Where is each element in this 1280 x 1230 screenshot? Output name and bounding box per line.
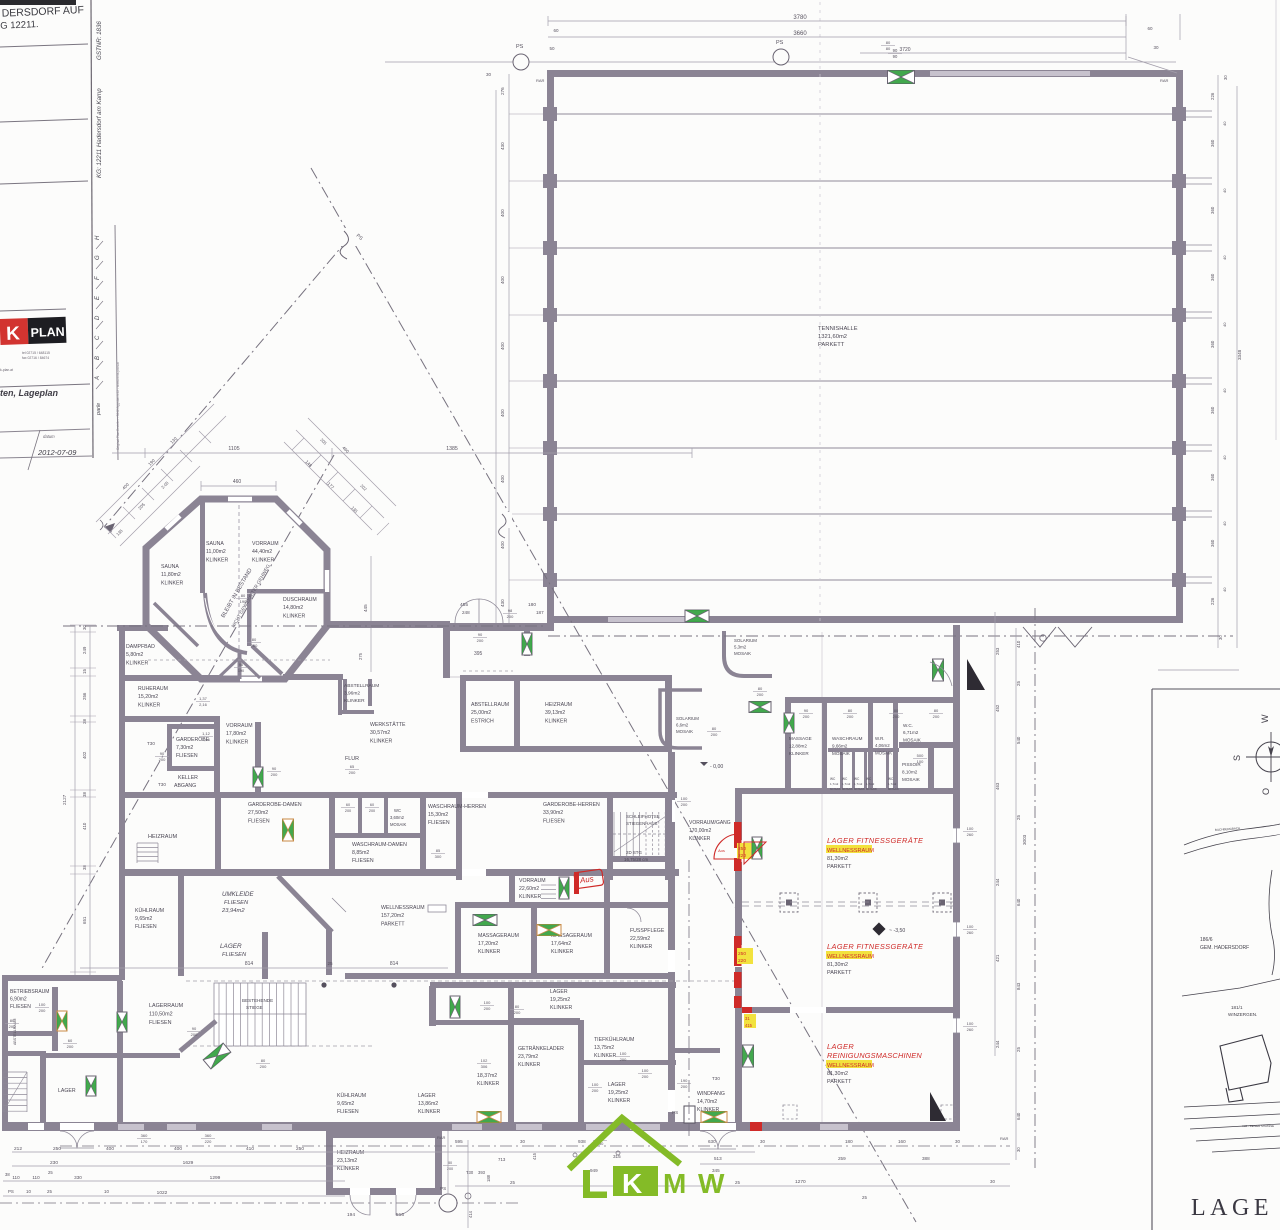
svg-text:1,7m2: 1,7m2 (888, 782, 897, 786)
svg-text:PS: PS (672, 1110, 678, 1115)
svg-text:RAR: RAR (1160, 78, 1169, 83)
svg-text:KLINKER: KLINKER (594, 1053, 616, 1059)
svg-text:ABSTELLRAUM: ABSTELLRAUM (344, 683, 379, 689)
svg-text:PARKETT: PARKETT (381, 921, 405, 927)
svg-text:410: 410 (1016, 640, 1021, 648)
svg-text:80: 80 (758, 686, 763, 691)
svg-text:FLIESEN: FLIESEN (135, 924, 157, 930)
svg-text:200: 200 (39, 1008, 46, 1013)
svg-text:25: 25 (327, 961, 333, 966)
svg-text:360: 360 (141, 1133, 148, 1138)
svg-text:100: 100 (642, 1068, 649, 1073)
svg-text:STIEGE: STIEGE (246, 1005, 263, 1010)
svg-text:30: 30 (1016, 1147, 1021, 1152)
svg-text:430: 430 (500, 599, 505, 607)
svg-text:KLINKER: KLINKER (418, 1109, 440, 1115)
svg-text:80: 80 (241, 593, 246, 598)
svg-text:30: 30 (990, 1179, 995, 1184)
svg-text:226: 226 (1210, 92, 1215, 100)
svg-text:200: 200 (345, 809, 351, 813)
svg-text:260: 260 (967, 1027, 974, 1032)
svg-text:244: 244 (995, 878, 1000, 886)
svg-text:460: 460 (233, 479, 242, 485)
svg-text:T30: T30 (712, 1076, 720, 1081)
svg-text:25: 25 (1016, 1047, 1021, 1052)
svg-text:GARDEROBE-HERREN: GARDEROBE-HERREN (543, 802, 600, 808)
svg-text:200: 200 (260, 1064, 267, 1069)
svg-text:FLIESEN: FLIESEN (428, 820, 450, 826)
svg-text:9,66m2: 9,66m2 (832, 743, 848, 748)
svg-text:60: 60 (68, 1038, 73, 1043)
svg-text:30: 30 (520, 1139, 525, 1144)
svg-text:110: 110 (32, 1175, 40, 1180)
svg-text:360: 360 (1210, 539, 1215, 547)
svg-text:VORRAUM/GANG: VORRAUM/GANG (689, 820, 731, 826)
svg-text:200: 200 (369, 809, 375, 813)
svg-text:360: 360 (1210, 340, 1215, 348)
svg-text:410: 410 (82, 822, 87, 830)
svg-text:400: 400 (500, 541, 505, 549)
svg-text:200: 200 (349, 770, 356, 775)
svg-text:306: 306 (481, 1064, 488, 1069)
svg-text:KLINKER: KLINKER (689, 836, 711, 842)
svg-text:WC: WC (888, 777, 894, 781)
svg-text:2127: 2127 (62, 794, 67, 805)
svg-text:400: 400 (500, 409, 505, 417)
svg-text:80: 80 (252, 637, 257, 642)
svg-text:200: 200 (847, 714, 854, 719)
svg-text:WINZERGEN.: WINZERGEN. (1228, 1012, 1257, 1017)
svg-text:KELLER: KELLER (178, 775, 198, 781)
svg-text:160: 160 (898, 1139, 906, 1144)
svg-text:MOSAIK: MOSAIK (390, 822, 406, 827)
svg-text:250: 250 (296, 1146, 304, 1152)
svg-text:200: 200 (711, 732, 718, 737)
svg-text:100: 100 (39, 1002, 46, 1007)
svg-text:275: 275 (358, 652, 363, 660)
svg-text:19,25m2: 19,25m2 (550, 997, 570, 1003)
svg-text:RUHERAUM: RUHERAUM (138, 686, 168, 692)
svg-text:640: 640 (1016, 1112, 1021, 1120)
svg-text:651: 651 (82, 916, 87, 924)
svg-text:40: 40 (1222, 188, 1227, 193)
svg-text:Aus: Aus (717, 848, 725, 853)
svg-text:100: 100 (681, 796, 688, 801)
svg-text:KLINKER: KLINKER (138, 702, 160, 708)
svg-text:1299: 1299 (210, 1175, 221, 1181)
svg-text:38: 38 (82, 865, 87, 870)
svg-text:KLINKER: KLINKER (161, 580, 183, 586)
svg-text:27,50m2: 27,50m2 (248, 810, 268, 816)
svg-text:90: 90 (893, 48, 898, 53)
svg-text:LAGERRAUM: LAGERRAUM (149, 1003, 184, 1009)
svg-text:F: F (95, 276, 101, 280)
svg-text:25: 25 (1016, 681, 1021, 686)
svg-text:1022: 1022 (157, 1190, 168, 1196)
svg-text:96: 96 (239, 663, 243, 667)
svg-text:7,30m2: 7,30m2 (176, 745, 193, 751)
svg-text:40: 40 (1222, 521, 1227, 526)
svg-text:3003: 3003 (1022, 834, 1027, 845)
svg-text:30: 30 (82, 625, 87, 630)
svg-text:230: 230 (50, 1160, 58, 1166)
svg-text:KÜHLRAUM: KÜHLRAUM (337, 1092, 366, 1099)
svg-text:100: 100 (967, 1021, 974, 1026)
svg-text:81,30m2: 81,30m2 (827, 962, 848, 968)
svg-text:100: 100 (484, 1000, 491, 1005)
svg-text:400: 400 (500, 276, 505, 284)
svg-text:31: 31 (745, 1016, 750, 1021)
svg-text:14,70m2: 14,70m2 (697, 1099, 717, 1105)
svg-text:k-plan.at: k-plan.at (0, 368, 13, 372)
svg-text:KLINKER: KLINKER (206, 557, 228, 563)
svg-text:81,30m2: 81,30m2 (827, 856, 848, 862)
svg-text:Original Plan Ersteller - 3642: Original Plan Ersteller - 3642 Aggsbach … (116, 362, 120, 450)
svg-text:5,3m2: 5,3m2 (734, 644, 747, 649)
svg-text:PLAN: PLAN (30, 325, 64, 340)
svg-text:- 0,00: - 0,00 (710, 764, 723, 770)
svg-text:1629: 1629 (183, 1160, 194, 1166)
svg-text:248: 248 (462, 610, 470, 615)
svg-text:421: 421 (995, 954, 1000, 962)
svg-text:MOSAIK: MOSAIK (888, 787, 899, 791)
svg-text:9,65m2: 9,65m2 (337, 1101, 354, 1107)
svg-text:3720: 3720 (899, 47, 910, 53)
svg-text:O: O (1261, 788, 1271, 795)
svg-text:40: 40 (1222, 121, 1227, 126)
svg-text:WC: WC (842, 777, 848, 781)
svg-text:6,90m2: 6,90m2 (10, 997, 27, 1003)
svg-text:PARKETT: PARKETT (827, 1079, 852, 1085)
svg-text:30: 30 (955, 1139, 960, 1144)
svg-text:TENNISHALLE: TENNISHALLE (818, 326, 858, 332)
svg-text:BETRIEBSRAUM: BETRIEBSRAUM (10, 989, 49, 995)
svg-text:WELLNESSRAUM: WELLNESSRAUM (381, 905, 425, 911)
svg-text:220: 220 (738, 958, 746, 964)
svg-text:186/6: 186/6 (1200, 937, 1213, 943)
svg-text:parle: parle (96, 403, 102, 416)
svg-text:T30: T30 (158, 782, 166, 787)
svg-text:25: 25 (47, 1189, 52, 1194)
svg-text:80: 80 (886, 46, 891, 51)
svg-text:10: 10 (104, 1189, 109, 1194)
svg-text:16,75/28 cm: 16,75/28 cm (624, 857, 649, 862)
svg-text:513: 513 (714, 1156, 722, 1161)
svg-text:LAGER: LAGER (550, 989, 568, 995)
svg-text:60: 60 (553, 28, 559, 33)
svg-text:KÜHLRAUM: KÜHLRAUM (135, 907, 164, 914)
svg-text:200: 200 (271, 772, 278, 777)
svg-text:SAUNA: SAUNA (206, 541, 224, 547)
svg-text:KLINKER: KLINKER (551, 949, 573, 955)
svg-text:415: 415 (532, 1152, 537, 1160)
svg-text:WERKSTÄTTE: WERKSTÄTTE (370, 721, 406, 728)
svg-text:400: 400 (500, 342, 505, 350)
svg-text:445: 445 (363, 604, 368, 612)
svg-text:FLIESEN: FLIESEN (224, 900, 249, 906)
svg-text:FLIESEN: FLIESEN (222, 952, 247, 958)
svg-text:395: 395 (474, 651, 483, 657)
svg-text:200: 200 (893, 714, 900, 719)
svg-text:843: 843 (1016, 982, 1021, 990)
svg-text:KLINKER: KLINKER (344, 698, 365, 704)
svg-text:PS: PS (440, 1186, 446, 1191)
svg-text:400: 400 (500, 209, 505, 217)
svg-text:1,7m2: 1,7m2 (830, 782, 839, 786)
svg-text:253: 253 (995, 647, 1000, 655)
svg-text:6,71m2: 6,71m2 (903, 730, 919, 735)
svg-text:60: 60 (1147, 26, 1153, 31)
svg-text:30: 30 (1153, 45, 1159, 50)
svg-text:102: 102 (481, 1058, 488, 1063)
svg-text:38: 38 (82, 719, 87, 724)
svg-text:LAGER: LAGER (58, 1088, 76, 1094)
svg-text:MOSAIK: MOSAIK (875, 750, 892, 755)
svg-text:200: 200 (67, 1044, 74, 1049)
svg-text:65: 65 (350, 764, 355, 769)
svg-text:B: B (95, 356, 101, 360)
svg-text:414: 414 (468, 1210, 473, 1218)
svg-text:200: 200 (592, 1088, 599, 1093)
svg-text:80: 80 (848, 708, 853, 713)
svg-text:360: 360 (205, 1133, 212, 1138)
svg-text:170: 170 (141, 1139, 148, 1144)
svg-text:KLINKER: KLINKER (519, 894, 541, 900)
svg-text:KLINKER: KLINKER (550, 1005, 572, 1011)
svg-text:19,25m2: 19,25m2 (608, 1090, 628, 1096)
svg-text:2,16: 2,16 (202, 737, 211, 742)
svg-text:80: 80 (886, 40, 891, 45)
svg-text:8,85m2: 8,85m2 (352, 850, 369, 856)
svg-text:KLINKER: KLINKER (608, 1098, 630, 1104)
svg-text:4,06m2: 4,06m2 (875, 743, 890, 748)
svg-text:MOSAIK: MOSAIK (676, 729, 693, 734)
svg-text:200: 200 (642, 1074, 649, 1079)
svg-text:11,80m2: 11,80m2 (161, 572, 181, 578)
svg-text:FLIESEN: FLIESEN (10, 1004, 31, 1010)
svg-text:PS: PS (516, 44, 524, 50)
svg-text:GSTNR: 1836: GSTNR: 1836 (96, 21, 103, 60)
svg-text:194: 194 (347, 1212, 355, 1218)
svg-text:WASCHRAUM-DAMEN: WASCHRAUM-DAMEN (352, 842, 407, 848)
svg-text:ESTRICH: ESTRICH (471, 718, 494, 724)
svg-text:ALB - REISER STRASSE: ALB - REISER STRASSE (1242, 1124, 1274, 1128)
svg-text:FLIESEN: FLIESEN (543, 818, 565, 824)
svg-text:260: 260 (967, 832, 974, 837)
svg-text:T30: T30 (466, 1170, 474, 1175)
svg-text:90: 90 (478, 632, 483, 637)
svg-text:2,16: 2,16 (199, 702, 208, 707)
svg-text:80: 80 (10, 1018, 15, 1023)
svg-text:100: 100 (967, 826, 974, 831)
svg-text:17,20m2: 17,20m2 (478, 941, 498, 947)
svg-text:360: 360 (1210, 139, 1215, 147)
svg-text:80: 80 (934, 708, 939, 713)
svg-text:10: 10 (26, 1189, 31, 1194)
svg-text:G 12211.: G 12211. (0, 19, 39, 32)
svg-text:LAGER FITNESSGERÄTE: LAGER FITNESSGERÄTE (827, 942, 923, 951)
svg-text:360: 360 (1210, 473, 1215, 481)
svg-text:MOSAIK: MOSAIK (842, 787, 853, 791)
svg-text:190: 190 (238, 669, 244, 673)
svg-text:410: 410 (246, 1146, 254, 1152)
svg-text:100: 100 (967, 924, 974, 929)
svg-text:40: 40 (1222, 255, 1227, 260)
svg-text:100: 100 (917, 759, 924, 764)
svg-text:C: C (95, 335, 101, 340)
svg-text:KLINKER: KLINKER (252, 557, 274, 563)
svg-text:K: K (6, 323, 21, 344)
svg-text:157,20m2: 157,20m2 (381, 913, 404, 919)
svg-text:LAGER: LAGER (220, 943, 242, 950)
svg-text:200: 200 (803, 714, 810, 719)
svg-text:GETRÄNKELADER: GETRÄNKELADER (518, 1045, 564, 1052)
svg-text:WASCHRAUM-HERREN: WASCHRAUM-HERREN (428, 804, 486, 810)
svg-text:W.C.: W.C. (903, 723, 913, 728)
svg-text:39,13m2: 39,13m2 (545, 710, 565, 716)
svg-text:HEIZRAUM: HEIZRAUM (337, 1150, 364, 1156)
svg-text:220: 220 (205, 1139, 212, 1144)
svg-text:15,20m2: 15,20m2 (138, 694, 158, 700)
svg-text:1270: 1270 (795, 1179, 806, 1185)
svg-text:WASCHRAUM: WASCHRAUM (832, 736, 863, 741)
svg-text:H: H (95, 235, 101, 240)
svg-text:MASSAGE: MASSAGE (789, 736, 812, 741)
svg-text:430: 430 (500, 142, 505, 150)
svg-text:KLINKER: KLINKER (630, 944, 652, 950)
svg-text:3348: 3348 (1237, 349, 1242, 360)
svg-text:PS: PS (776, 40, 784, 46)
svg-text:30,57m2: 30,57m2 (370, 730, 390, 736)
svg-text:FLUR: FLUR (345, 756, 359, 762)
svg-text:244: 244 (995, 1040, 1000, 1048)
svg-text:FUSSPFLEGE: FUSSPFLEGE (630, 928, 665, 934)
svg-text:30: 30 (760, 1139, 765, 1144)
svg-text:250: 250 (738, 951, 746, 957)
svg-text:80: 80 (515, 1004, 520, 1009)
svg-text:ten, Lageplan: ten, Lageplan (0, 388, 59, 398)
svg-text:ABGANG: ABGANG (174, 783, 196, 789)
svg-text:80: 80 (712, 726, 717, 731)
svg-text:2D STG: 2D STG (626, 850, 642, 855)
svg-text:814: 814 (245, 961, 254, 967)
svg-text:212: 212 (14, 1146, 22, 1152)
svg-text:256: 256 (82, 692, 87, 700)
svg-text:90: 90 (893, 54, 898, 59)
svg-text:STIEGENHAUS: STIEGENHAUS (626, 821, 658, 826)
svg-text:452: 452 (995, 704, 1000, 712)
svg-text:DAMPFBAD: DAMPFBAD (126, 644, 155, 650)
svg-text:fax 02716 / 84674: fax 02716 / 84674 (22, 356, 49, 360)
svg-text:388: 388 (922, 1156, 930, 1161)
svg-text:200: 200 (514, 1010, 521, 1015)
svg-text:KLINKER: KLINKER (283, 613, 305, 619)
svg-text:PS: PS (8, 1189, 14, 1194)
svg-text:A: A (95, 376, 101, 381)
svg-text:200: 200 (620, 1057, 627, 1062)
svg-text:1,7m2: 1,7m2 (842, 782, 851, 786)
svg-text:15: 15 (82, 669, 87, 674)
svg-text:400: 400 (174, 1146, 182, 1152)
svg-text:200: 200 (757, 692, 764, 697)
svg-text:KG: 12211 Hadersdorf am Kamp: KG: 12211 Hadersdorf am Kamp (96, 88, 103, 178)
svg-text:SAUNA: SAUNA (161, 564, 179, 570)
svg-text:UMKLEIDE: UMKLEIDE (222, 891, 255, 898)
svg-text:400: 400 (500, 475, 505, 483)
svg-text:WC: WC (866, 777, 872, 781)
svg-text:25,00m2: 25,00m2 (471, 710, 491, 716)
svg-text:tel 02715 / 648115: tel 02715 / 648115 (22, 351, 50, 355)
svg-text:85: 85 (436, 848, 441, 853)
svg-text:W: W (698, 1168, 725, 1199)
svg-text:595: 595 (455, 1139, 463, 1144)
svg-text:40: 40 (1222, 322, 1227, 327)
svg-text:15,30m2: 15,30m2 (428, 812, 448, 818)
svg-text:40: 40 (1222, 587, 1227, 592)
svg-text:W.R.: W.R. (875, 736, 885, 741)
svg-text:30: 30 (1218, 635, 1223, 640)
svg-text:814: 814 (390, 961, 399, 967)
svg-text:200: 200 (681, 802, 688, 807)
svg-text:RAR: RAR (536, 78, 545, 83)
svg-text:KLINKER: KLINKER (337, 1166, 359, 1172)
svg-text:3780: 3780 (793, 15, 807, 21)
svg-text:DUSCHRAUM: DUSCHRAUM (283, 597, 317, 603)
svg-text:MOSAIK: MOSAIK (854, 787, 865, 791)
svg-text:VORRAUM: VORRAUM (226, 723, 253, 729)
svg-text:187: 187 (536, 610, 544, 615)
svg-text:MASSAGERAUM: MASSAGERAUM (478, 933, 519, 939)
svg-text:HEIZRAUM: HEIZRAUM (545, 702, 572, 708)
svg-text:44,40m2: 44,40m2 (252, 549, 272, 555)
svg-text:949: 949 (590, 1168, 598, 1173)
svg-text:25: 25 (510, 1180, 515, 1185)
svg-text:226: 226 (1210, 597, 1215, 605)
svg-text:WELLNESSRAUM: WELLNESSRAUM (827, 848, 874, 854)
svg-text:G: G (95, 255, 101, 260)
svg-text:KLINKER: KLINKER (478, 949, 500, 955)
svg-text:23,94m2: 23,94m2 (221, 908, 245, 914)
svg-text:FLIESEN: FLIESEN (176, 753, 198, 759)
svg-text:415: 415 (745, 1023, 753, 1028)
svg-text:KLINKER: KLINKER (370, 738, 392, 744)
svg-text:276: 276 (500, 87, 505, 95)
svg-text:200: 200 (477, 638, 484, 643)
svg-text:300: 300 (435, 854, 442, 859)
svg-text:TIEFKÜHLRAUM: TIEFKÜHLRAUM (594, 1036, 634, 1043)
svg-text:PARKETT: PARKETT (827, 970, 852, 976)
svg-text:RAR: RAR (1000, 1136, 1009, 1141)
svg-text:249: 249 (82, 646, 87, 654)
svg-text:22,60m2: 22,60m2 (519, 886, 539, 892)
svg-text:VORRAUM: VORRAUM (519, 878, 546, 884)
svg-text:M: M (663, 1168, 686, 1199)
svg-text:100: 100 (592, 1082, 599, 1087)
svg-text:ABSTELLRAUM: ABSTELLRAUM (471, 702, 509, 708)
svg-text:WELLNESSRAUM: WELLNESSRAUM (827, 954, 874, 960)
svg-text:FLIESEN: FLIESEN (149, 1020, 172, 1026)
svg-text:200: 200 (933, 714, 940, 719)
svg-text:T30: T30 (147, 741, 155, 746)
svg-text:80: 80 (261, 1058, 266, 1063)
svg-text:90: 90 (192, 1026, 197, 1031)
svg-text:23,13m2: 23,13m2 (337, 1158, 357, 1164)
svg-text:38: 38 (5, 1172, 10, 1177)
svg-text:188: 188 (486, 1174, 491, 1182)
svg-text:HEIZRAUM: HEIZRAUM (148, 834, 178, 840)
svg-text:8,10m2: 8,10m2 (902, 769, 918, 774)
svg-text:13,86m2: 13,86m2 (418, 1101, 438, 1107)
